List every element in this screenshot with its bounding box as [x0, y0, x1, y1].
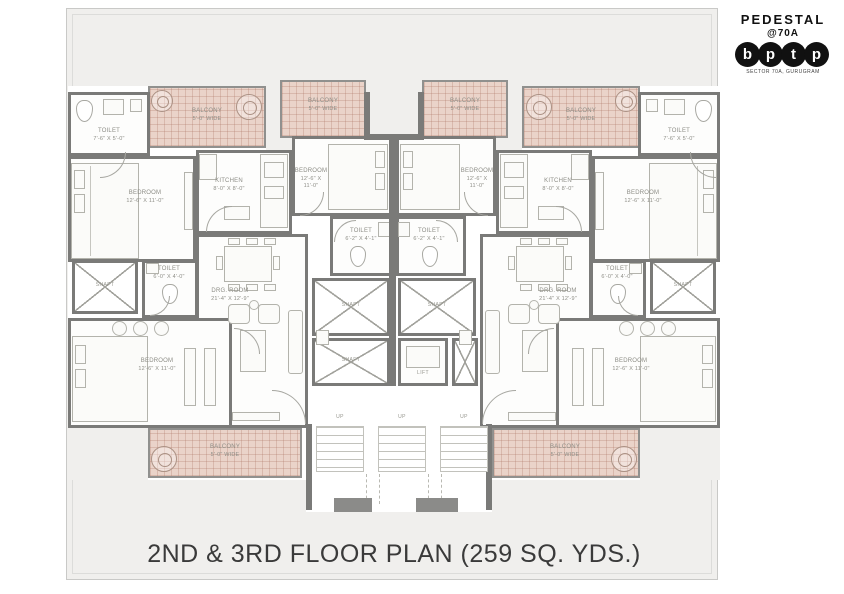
label-toilet-top-right: TOILET 7'-6" X 5'-0" — [640, 128, 718, 143]
fridge — [571, 154, 589, 180]
armchair — [258, 304, 280, 324]
wardrobe — [204, 348, 216, 406]
dining-chair — [538, 238, 550, 245]
label-drawing-right: DRG. ROOM 21'-4" X 12'-9" — [523, 288, 593, 303]
kitchen-sink — [264, 186, 284, 199]
bptp-letter-disc: p — [758, 42, 783, 67]
pillow — [74, 170, 85, 189]
shelf — [646, 99, 658, 112]
page-title: 2ND & 3RD FLOOR PLAN (259 SQ. YDS.) — [70, 540, 718, 569]
dining-chair — [264, 238, 276, 245]
sofa — [288, 310, 303, 374]
dining-chair — [228, 238, 240, 245]
label-balcony-center-left: BALCONY 5'-0" WIDE — [284, 98, 362, 113]
label-drawing-left: DRG. ROOM 21'-4" X 12'-9" — [195, 288, 265, 303]
pillar — [416, 498, 458, 512]
dining-table — [224, 246, 272, 282]
label-bedroom-left-2: BEDROOM 12'-6" X 11'-0" — [112, 358, 202, 373]
label-toilet-center-left: TOILET 6'-2" X 4'-1" — [332, 228, 390, 243]
label-bedroom-center-left: BEDROOM 12'-6" X 11'-0" — [294, 168, 328, 190]
brand-tagline: SECTOR 70A, GURUGRAM — [728, 69, 838, 75]
brand-sub: @70A — [728, 28, 838, 39]
label-balcony-bottom-left: BALCONY 5'-0" WIDE — [158, 444, 292, 459]
label-shaft: SHAFT — [650, 282, 716, 288]
label-balcony-bottom-right: BALCONY 5'-0" WIDE — [498, 444, 632, 459]
stair-flight — [316, 426, 364, 472]
wardrobe — [184, 348, 196, 406]
stair-flight — [440, 426, 488, 472]
label-bedroom-center-right: BEDROOM 12'-6" X 11'-0" — [460, 168, 494, 190]
stair-flight — [378, 426, 426, 472]
dining-chair — [273, 256, 280, 270]
label-toilet-center-right: TOILET 6'-2" X 4'-1" — [400, 228, 458, 243]
label-kitchen-left: KITCHEN 8'-0" X 8'-0" — [199, 178, 259, 193]
bed — [328, 144, 388, 210]
bed — [640, 336, 716, 422]
label-toilet-top-left: TOILET 7'-6" X 5'-0" — [70, 128, 148, 143]
pillow — [702, 345, 713, 364]
bed — [649, 163, 717, 259]
pillow — [375, 173, 385, 190]
mattress-line — [90, 166, 91, 256]
brand-logo: PEDESTAL @70A b p t p SECTOR 70A, GURUGR… — [728, 12, 838, 75]
shaft-core-right-2 — [452, 338, 478, 386]
pouf — [661, 321, 676, 336]
sofa — [485, 310, 500, 374]
dining-table — [516, 246, 564, 282]
dining-chair — [246, 238, 258, 245]
label-balcony-center-right: BALCONY 5'-0" WIDE — [426, 98, 504, 113]
pillar — [334, 498, 372, 512]
washbasin — [459, 330, 472, 345]
fridge — [199, 154, 217, 180]
washbasin — [103, 99, 124, 115]
pillow — [375, 151, 385, 168]
bptp-logo-icon: b p t p — [728, 42, 838, 67]
pillow — [403, 151, 413, 168]
wall-segment — [364, 92, 370, 140]
lift-car — [406, 346, 440, 368]
wall-segment — [364, 134, 424, 140]
bptp-letter-disc: b — [735, 42, 760, 67]
party-wall — [389, 136, 396, 386]
bptp-letter-disc: p — [804, 42, 829, 67]
pillow — [74, 194, 85, 213]
shelf — [130, 99, 142, 112]
pouf — [154, 321, 169, 336]
pillow — [403, 173, 413, 190]
armchair — [228, 304, 250, 324]
hob — [504, 162, 524, 178]
pillow — [75, 369, 86, 388]
label-bedroom-right-2: BEDROOM 12'-6" X 11'-0" — [586, 358, 676, 373]
bptp-letter-disc: t — [781, 42, 806, 67]
label-shaft: SHAFT — [398, 302, 476, 308]
label-kitchen-right: KITCHEN 8'-0" X 8'-0" — [528, 178, 588, 193]
bed — [400, 144, 460, 210]
stair-wall-left — [306, 424, 312, 510]
mattress-line — [697, 166, 698, 256]
label-balcony-top-left: BALCONY 5'-0" WIDE — [153, 108, 261, 123]
wardrobe — [572, 348, 584, 406]
dining-chair — [556, 238, 568, 245]
dining-chair — [216, 256, 223, 270]
washbasin — [664, 99, 685, 115]
label-shaft: SHAFT — [312, 302, 390, 308]
dining-chair — [508, 256, 515, 270]
brand-name: PEDESTAL — [728, 12, 838, 27]
bottom-left-recess — [68, 428, 148, 480]
hob — [264, 162, 284, 178]
label-toilet-small-left: TOILET 6'-0" X 4'-0" — [142, 266, 196, 281]
bottom-right-recess — [640, 428, 720, 480]
pouf — [640, 321, 655, 336]
top-center-recess — [366, 86, 422, 138]
label-toilet-small-right: TOILET 6'-0" X 4'-0" — [590, 266, 644, 281]
pouf — [619, 321, 634, 336]
label-stairs-up: UP — [440, 414, 488, 420]
label-stairs-up: UP — [378, 414, 426, 420]
pillow — [703, 194, 714, 213]
washbasin — [316, 330, 329, 345]
wall-segment — [418, 92, 424, 140]
label-bedroom-left-1: BEDROOM 12'-6" X 11'-0" — [100, 190, 190, 205]
label-shaft: SHAFT — [72, 282, 138, 288]
dining-chair — [520, 238, 532, 245]
dining-chair — [565, 256, 572, 270]
label-balcony-top-right: BALCONY 5'-0" WIDE — [527, 108, 635, 123]
label-bedroom-right-1: BEDROOM 12'-6" X 11'-0" — [598, 190, 688, 205]
label-shaft: SHAFT — [312, 357, 390, 363]
pouf — [112, 321, 127, 336]
floor-plan-sheet: TOILET 7'-6" X 5'-0" TOILET 7'-6" X 5'-0… — [0, 0, 844, 594]
label-lift: LIFT — [398, 370, 448, 376]
kitchen-sink — [504, 186, 524, 199]
pouf — [133, 321, 148, 336]
armchair — [508, 304, 530, 324]
dining-chair — [264, 284, 276, 291]
pillow — [75, 345, 86, 364]
armchair — [538, 304, 560, 324]
label-stairs-up: UP — [316, 414, 364, 420]
pillow — [702, 369, 713, 388]
bed — [72, 336, 148, 422]
wardrobe — [592, 348, 604, 406]
